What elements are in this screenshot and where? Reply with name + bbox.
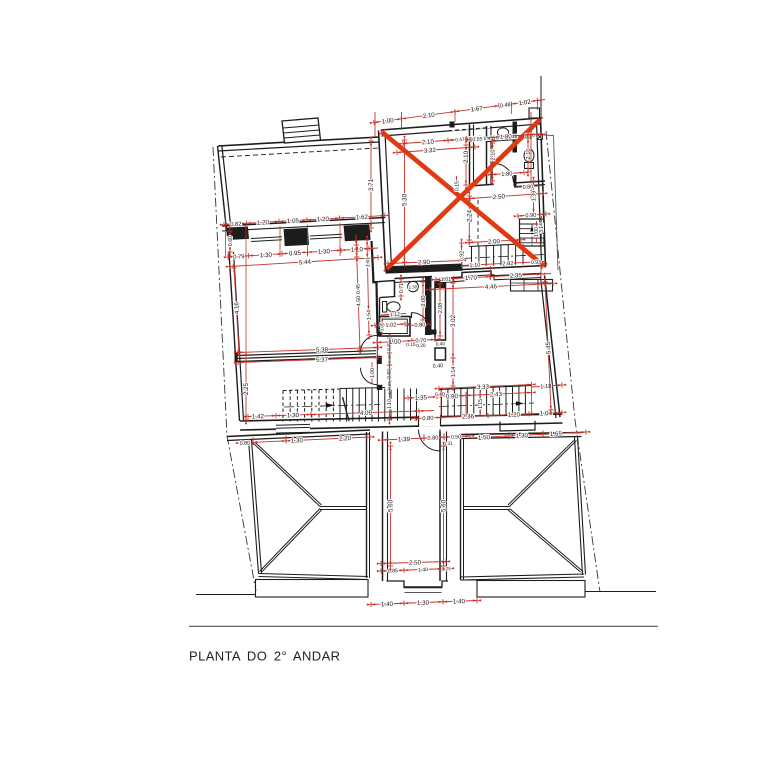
svg-text:1.30: 1.30 xyxy=(409,284,418,289)
svg-text:0.71: 0.71 xyxy=(399,283,405,293)
svg-text:1.15: 1.15 xyxy=(478,399,484,409)
svg-text:2.35: 2.35 xyxy=(510,272,523,280)
svg-text:2.50: 2.50 xyxy=(493,193,506,201)
svg-text:0.79: 0.79 xyxy=(233,254,245,261)
svg-text:1.30: 1.30 xyxy=(260,252,273,260)
svg-text:1.80: 1.80 xyxy=(500,134,513,141)
svg-text:1.50: 1.50 xyxy=(478,434,491,442)
svg-text:5.37: 5.37 xyxy=(316,356,329,363)
svg-text:1.40: 1.40 xyxy=(381,601,394,608)
svg-text:5.45: 5.45 xyxy=(545,341,553,354)
svg-text:1.65: 1.65 xyxy=(550,430,563,438)
svg-text:1.30: 1.30 xyxy=(291,437,304,445)
svg-text:1.40: 1.40 xyxy=(418,567,428,573)
svg-text:2.43: 2.43 xyxy=(490,391,503,399)
svg-text:3.71: 3.71 xyxy=(368,178,375,191)
svg-text:1.00: 1.00 xyxy=(534,227,540,237)
svg-text:1.10: 1.10 xyxy=(469,263,480,270)
svg-text:0.40: 0.40 xyxy=(435,392,446,399)
svg-text:1.20: 1.20 xyxy=(317,216,330,224)
svg-text:2.36: 2.36 xyxy=(462,413,475,421)
svg-text:0.80: 0.80 xyxy=(240,440,251,446)
svg-text:1.12: 1.12 xyxy=(390,312,401,319)
svg-text:2.25: 2.25 xyxy=(243,382,250,395)
svg-text:0.15: 0.15 xyxy=(406,342,416,348)
svg-text:0.47: 0.47 xyxy=(455,137,465,144)
svg-text:0.80: 0.80 xyxy=(387,369,393,379)
svg-text:2.50: 2.50 xyxy=(409,559,422,566)
svg-text:1.30: 1.30 xyxy=(318,248,331,256)
svg-text:1.42: 1.42 xyxy=(252,413,265,420)
svg-text:1.54: 1.54 xyxy=(366,310,372,320)
svg-text:3.02: 3.02 xyxy=(450,314,457,327)
svg-text:3.32: 3.32 xyxy=(424,147,437,155)
svg-text:1.00: 1.00 xyxy=(389,338,402,346)
svg-text:0.80: 0.80 xyxy=(422,416,434,422)
svg-text:3.33: 3.33 xyxy=(477,384,490,392)
svg-text:1.02: 1.02 xyxy=(385,322,396,329)
svg-text:1.30: 1.30 xyxy=(417,599,430,606)
svg-text:4.46: 4.46 xyxy=(485,283,498,291)
svg-text:0.80: 0.80 xyxy=(427,435,438,441)
svg-text:0.80: 0.80 xyxy=(522,184,533,191)
svg-text:4.16: 4.16 xyxy=(233,301,241,314)
svg-text:0.93: 0.93 xyxy=(531,260,541,266)
svg-text:1.20: 1.20 xyxy=(508,411,521,419)
svg-text:5.38: 5.38 xyxy=(316,346,329,353)
svg-text:2.10: 2.10 xyxy=(463,150,470,163)
svg-text:1.20: 1.20 xyxy=(257,219,270,227)
svg-text:0.82: 0.82 xyxy=(230,222,242,229)
svg-text:0.40: 0.40 xyxy=(436,341,446,347)
svg-text:1.14: 1.14 xyxy=(451,367,457,378)
svg-text:5.30: 5.30 xyxy=(402,193,409,206)
svg-text:2.20: 2.20 xyxy=(339,435,352,443)
svg-text:5.60: 5.60 xyxy=(441,499,448,512)
svg-text:0.80: 0.80 xyxy=(414,322,425,329)
svg-text:0.90: 0.90 xyxy=(525,213,536,220)
svg-text:1.10: 1.10 xyxy=(387,399,393,409)
svg-text:1.10: 1.10 xyxy=(351,246,364,254)
svg-text:1.30: 1.30 xyxy=(287,412,300,419)
svg-text:1.39: 1.39 xyxy=(398,436,411,444)
svg-text:1.70: 1.70 xyxy=(465,274,478,282)
svg-text:0.40: 0.40 xyxy=(433,363,444,370)
svg-text:0.45: 0.45 xyxy=(356,284,362,294)
svg-text:4.50: 4.50 xyxy=(356,296,362,307)
svg-text:4.09: 4.09 xyxy=(360,410,373,417)
svg-text:1.39: 1.39 xyxy=(531,191,537,202)
svg-text:2.08: 2.08 xyxy=(438,303,444,314)
svg-text:1.05: 1.05 xyxy=(287,217,300,225)
svg-text:0.50: 0.50 xyxy=(451,434,461,440)
svg-text:2.82: 2.82 xyxy=(502,261,513,268)
svg-text:1.30: 1.30 xyxy=(516,432,529,440)
svg-text:0.20: 0.20 xyxy=(416,343,426,349)
svg-text:1.00: 1.00 xyxy=(370,368,376,378)
svg-text:1.80: 1.80 xyxy=(501,171,513,178)
svg-text:1.40: 1.40 xyxy=(453,598,466,605)
svg-text:2.90: 2.90 xyxy=(418,259,431,267)
svg-text:0.95: 0.95 xyxy=(289,250,302,258)
svg-text:PLANTA DO 2° ANDAR: PLANTA DO 2° ANDAR xyxy=(189,649,340,664)
svg-text:1.62: 1.62 xyxy=(356,214,369,222)
svg-text:0.60: 0.60 xyxy=(228,236,234,246)
svg-text:0.90: 0.90 xyxy=(446,393,459,401)
svg-text:0.92: 0.92 xyxy=(459,251,465,261)
svg-text:2.10: 2.10 xyxy=(491,150,497,161)
svg-text:2.00: 2.00 xyxy=(421,295,427,306)
svg-text:0.30: 0.30 xyxy=(387,354,393,364)
svg-text:1.35: 1.35 xyxy=(415,394,428,402)
svg-text:1.01: 1.01 xyxy=(441,277,452,284)
svg-text:2.24: 2.24 xyxy=(467,209,474,222)
svg-text:0.85: 0.85 xyxy=(388,568,398,574)
svg-text:1.61: 1.61 xyxy=(365,257,371,267)
svg-text:0.55: 0.55 xyxy=(472,137,483,144)
svg-text:2.00: 2.00 xyxy=(488,238,501,246)
svg-text:5.60: 5.60 xyxy=(388,499,395,512)
svg-text:0.05: 0.05 xyxy=(380,322,385,331)
svg-text:5.44: 5.44 xyxy=(299,259,312,267)
svg-text:2.10: 2.10 xyxy=(422,138,435,146)
svg-text:0.15: 0.15 xyxy=(454,181,460,191)
